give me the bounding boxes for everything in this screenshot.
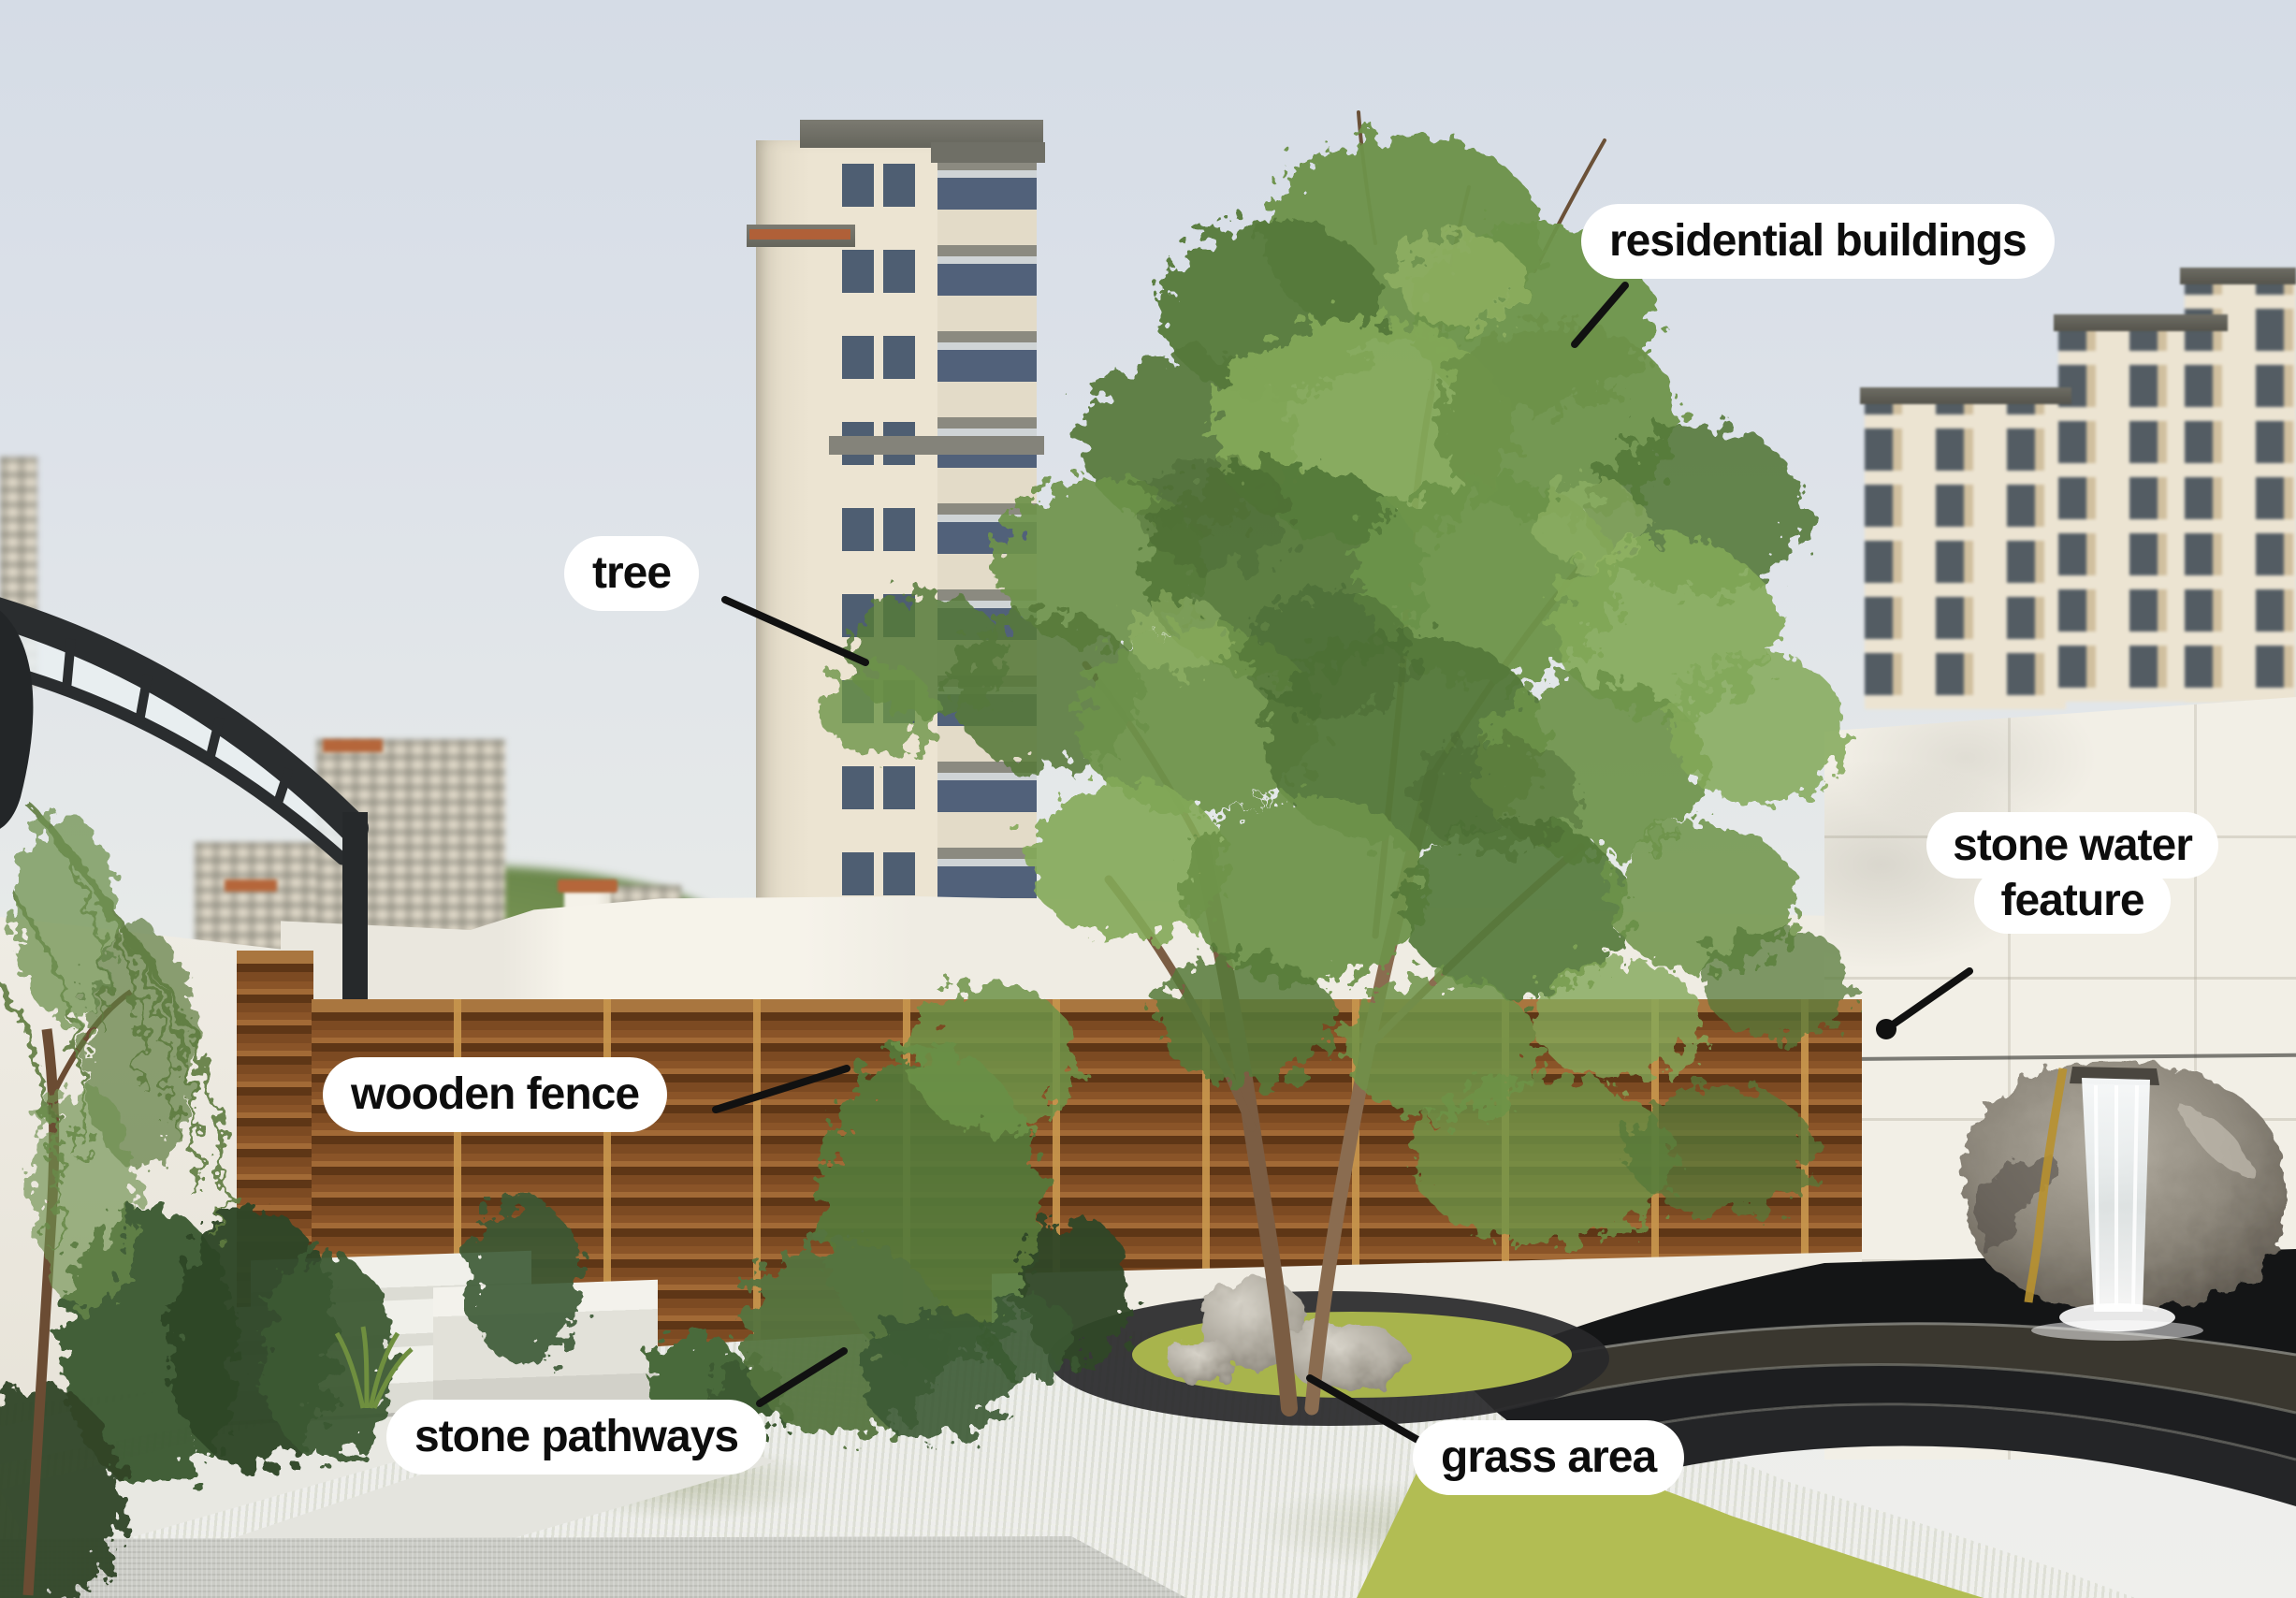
label-tree: tree: [564, 536, 699, 611]
label-residential-buildings: residential buildings: [1581, 204, 2055, 279]
label-stone-water-feature: stone water feature: [1871, 812, 2274, 934]
label-stone-pathways: stone pathways: [386, 1400, 766, 1475]
distant-tower-1-roof: [225, 879, 277, 892]
residential-roof-middle: [2054, 314, 2228, 331]
central-tower-balcony-column: [937, 159, 1037, 1001]
residential-building-right: [2185, 281, 2296, 702]
pergola-glass-panel: [0, 610, 354, 859]
pergola-connectors: [66, 639, 289, 806]
leader-line-residential: [1575, 285, 1625, 344]
pergola-arc-outer: [0, 610, 354, 828]
garden-render-scene: residential buildings tree stone water f…: [0, 0, 2296, 1598]
residential-roof-right: [2180, 268, 2296, 284]
distant-tower-2-roof: [323, 739, 383, 752]
label-wooden-fence: wooden fence: [323, 1057, 667, 1132]
residential-building-left: [1865, 400, 2066, 709]
residential-roof-left: [1860, 387, 2071, 404]
central-tower-mid-cornice: [829, 436, 1044, 455]
central-tower-windows: [842, 164, 915, 987]
central-tower-upper-cornice: [931, 142, 1045, 163]
pergola-arc-inner: [0, 666, 342, 859]
distant-building-sliver: [0, 457, 37, 686]
garden-gate-roof: [558, 879, 618, 893]
central-tower-red-trim: [749, 229, 850, 240]
label-grass-area: grass area: [1413, 1420, 1684, 1495]
label-stone-water-line2: feature: [1974, 867, 2170, 934]
